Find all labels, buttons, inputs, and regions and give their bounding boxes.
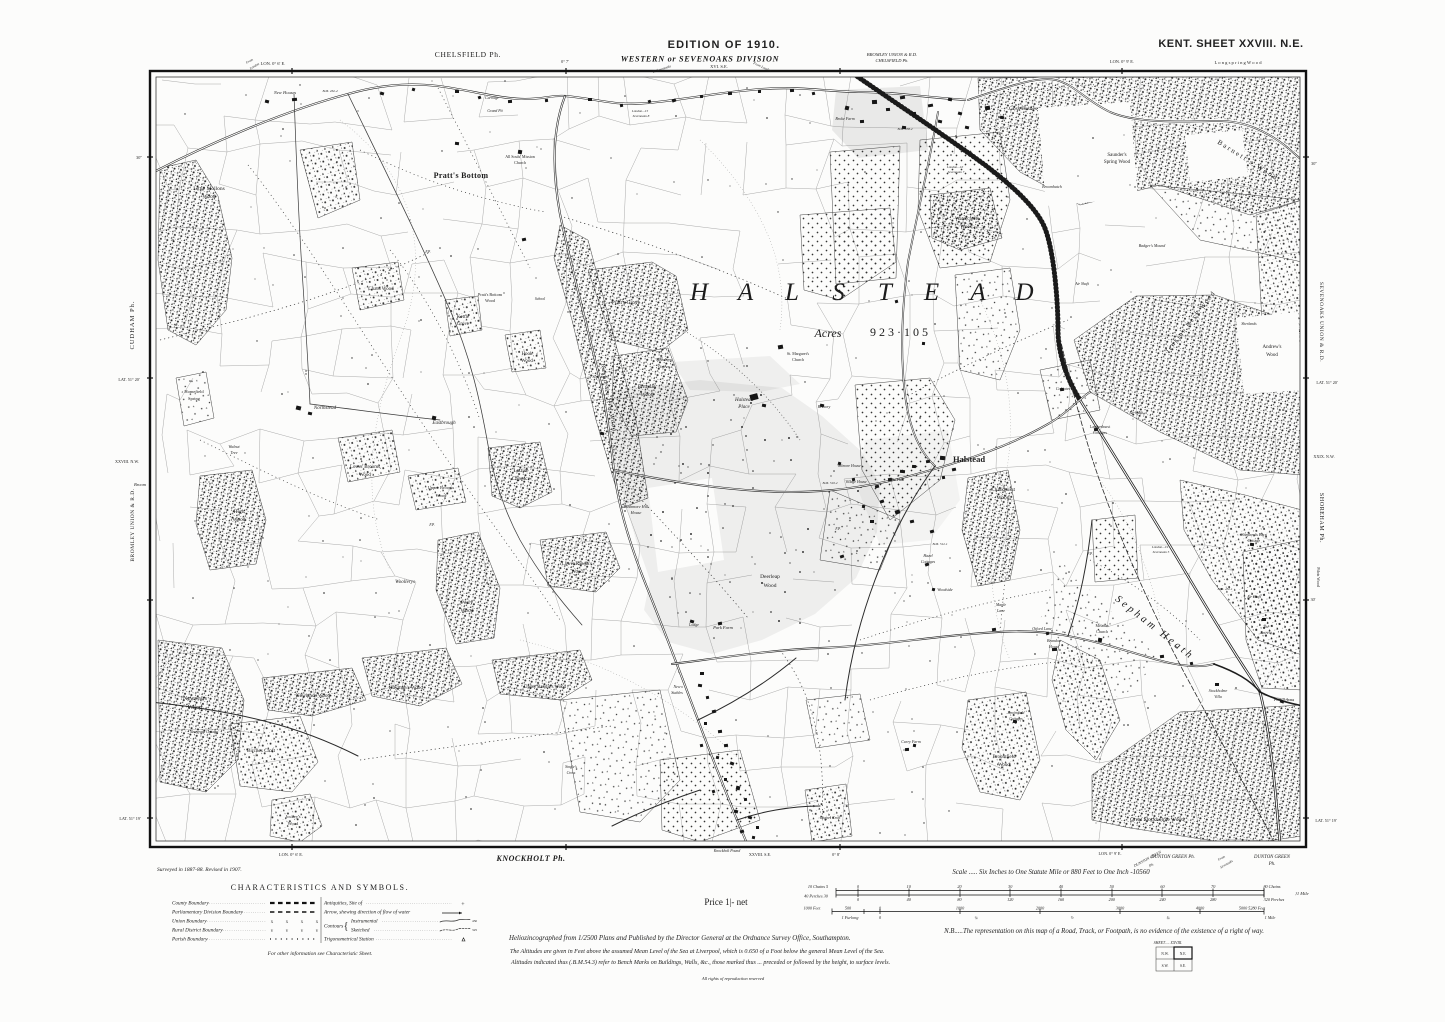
svg-text:Contours: Contours [324, 924, 343, 930]
svg-text:Curry Farm: Curry Farm [901, 739, 921, 744]
svg-text:Air Shaft: Air Shaft [1128, 411, 1144, 415]
svg-text:160: 160 [1058, 897, 1065, 902]
svg-text:Lower Brooms: Lower Brooms [350, 465, 380, 470]
svg-text:Broomfield: Broomfield [1008, 711, 1025, 715]
svg-text:Scale ..... Six Inches to One: Scale ..... Six Inches to One Statute Mi… [952, 869, 1150, 876]
svg-text:LAT. 51° 19': LAT. 51° 19' [1315, 818, 1337, 823]
svg-text:Cottages: Cottages [1009, 717, 1023, 721]
svg-text:Lattice: Lattice [513, 468, 529, 474]
svg-text:Village House: Village House [845, 480, 867, 484]
svg-text:B.M. 495.5: B.M. 495.5 [592, 375, 607, 379]
svg-text:5000 5280 Feet: 5000 5280 Feet [1239, 906, 1266, 911]
svg-text:}1 Mile: }1 Mile [1295, 891, 1309, 896]
svg-text:Retreat: Retreat [1259, 630, 1273, 635]
svg-text:The Altitudes are given in Fee: The Altitudes are given in Feet above th… [510, 948, 884, 955]
svg-text:Sevenoaks 8: Sevenoaks 8 [633, 114, 650, 118]
svg-text:Watercrofts: Watercrofts [955, 215, 979, 222]
svg-text:LAT. 51° 20': LAT. 51° 20' [118, 377, 140, 382]
svg-text:T: T [878, 279, 894, 306]
svg-text:N.E.: N.E. [1180, 952, 1187, 956]
svg-text:B.M. 358.2: B.M. 358.2 [897, 127, 912, 131]
svg-text:L: L [784, 279, 799, 306]
svg-text:House: House [1048, 644, 1059, 649]
svg-text:Wood: Wood [521, 359, 533, 364]
svg-text:XXVIII. S.E.: XXVIII. S.E. [749, 852, 771, 857]
svg-text:Acres: Acres [814, 326, 842, 340]
svg-text:Pratt's Bottom: Pratt's Bottom [478, 292, 503, 297]
svg-text:Wood: Wood [485, 298, 496, 303]
svg-text:Beechen: Beechen [656, 357, 672, 362]
svg-text:Parish Boundary: Parish Boundary [171, 937, 208, 943]
svg-text:Northstead: Northstead [313, 406, 337, 411]
svg-text:30': 30' [1311, 597, 1316, 602]
svg-text:Woollerys: Woollerys [395, 580, 415, 585]
svg-text:Grove: Grove [457, 322, 470, 327]
svg-text:L o n g s p r i n g W o o d: L o n g s p r i n g W o o d [1214, 60, 1262, 65]
svg-text:Birches Croft: Birches Croft [247, 747, 276, 754]
svg-text:40 Perches 30: 40 Perches 30 [804, 894, 829, 899]
svg-text:Price 1|- net: Price 1|- net [704, 897, 748, 907]
svg-text:Trigonometrical Station: Trigonometrical Station [324, 937, 374, 943]
svg-text:A: A [968, 279, 986, 306]
svg-text:Stables: Stables [671, 690, 683, 695]
svg-text:{: { [344, 921, 349, 932]
svg-text:DUNTON GREEN: DUNTON GREEN [1253, 855, 1291, 860]
svg-text:Eastbrough: Eastbrough [431, 421, 456, 426]
svg-text:Pratt's Bottom: Pratt's Bottom [434, 171, 489, 180]
svg-text:Hayman's Wood: Hayman's Wood [389, 685, 423, 691]
svg-text:Pratt's Grove: Pratt's Grove [612, 300, 641, 306]
svg-text:Stockholme: Stockholme [1209, 688, 1228, 693]
svg-text:Hook: Hook [521, 352, 533, 357]
svg-text:3000: 3000 [1116, 906, 1125, 911]
svg-text:Park Farm: Park Farm [712, 625, 734, 630]
svg-text:H: H [689, 279, 710, 306]
svg-text:Mission: Mission [1096, 623, 1109, 628]
svg-text:Lane: Lane [996, 608, 1005, 613]
svg-text:Place: Place [737, 405, 750, 410]
svg-text:Broke Farm: Broke Farm [835, 116, 854, 121]
svg-text:Villa: Villa [1214, 694, 1221, 699]
svg-text:High: High [234, 509, 245, 515]
svg-text:1 Furlong: 1 Furlong [842, 915, 859, 920]
svg-text:House: House [630, 510, 642, 515]
svg-text:Cottage: Cottage [1248, 538, 1261, 543]
svg-text:KENT. SHEET XXVIII. N.E.: KENT. SHEET XXVIII. N.E. [1158, 38, 1303, 50]
svg-text:B.M. 510.2: B.M. 510.2 [822, 481, 837, 485]
svg-text:A: A [736, 279, 754, 306]
svg-text:Broomhatch: Broomhatch [1042, 184, 1062, 189]
svg-text:Wood.: Wood. [960, 224, 974, 230]
svg-text:320 Perches: 320 Perches [1264, 897, 1285, 902]
svg-text:Chapel Croft: Chapel Croft [820, 815, 842, 820]
svg-text:LON. 0° 9' E.: LON. 0° 9' E. [1098, 851, 1121, 856]
svg-text:Wood: Wood [188, 705, 202, 711]
svg-text:Newyears: Newyears [183, 696, 208, 702]
svg-text:Badger's Mound: Badger's Mound [1139, 243, 1167, 248]
svg-text:Rectory: Rectory [817, 404, 831, 409]
svg-text:Sherlands: Sherlands [1241, 322, 1257, 326]
svg-text:All rights of reproduction res: All rights of reproduction reserved [701, 976, 765, 981]
svg-text:80 Chains: 80 Chains [1263, 884, 1280, 889]
svg-text:200: 200 [1109, 897, 1116, 902]
svg-text:Wood: Wood [996, 495, 1009, 501]
svg-text:Little Mollons: Little Mollons [193, 186, 225, 192]
svg-text:Goss Bushes: Goss Bushes [1009, 106, 1037, 112]
svg-text:For other information see Char: For other information see Characteristic… [267, 950, 373, 957]
svg-text:280: 280 [1210, 897, 1217, 902]
svg-text:Woodside: Woodside [937, 587, 953, 592]
svg-text:Saunder's: Saunder's [1107, 153, 1126, 158]
svg-text:Surveyed in 1887-88. Revised: Surveyed in 1887-88. Revised in 1907. [157, 867, 242, 873]
svg-text:Single's: Single's [565, 765, 577, 769]
svg-text:Kettle: Kettle [457, 315, 470, 320]
svg-text:LAT. 51° 19': LAT. 51° 19' [119, 816, 141, 821]
svg-text:LON. 0° 6' E.: LON. 0° 6' E. [261, 61, 286, 66]
svg-text:Heliozincographed from 1/2500: Heliozincographed from 1/2500 Plans and … [508, 935, 851, 942]
svg-text:Wilmore House: Wilmore House [837, 464, 861, 468]
svg-text:Lamberhurst: Lamberhurst [1090, 424, 1111, 429]
svg-text:Air Shaft: Air Shaft [1246, 595, 1262, 599]
svg-text:4000: 4000 [1196, 906, 1205, 911]
svg-text:Great Stockholme Wood: Great Stockholme Wood [1130, 817, 1184, 823]
svg-text:Sevenoaks 7: Sevenoaks 7 [948, 170, 965, 174]
svg-text:240: 240 [1159, 897, 1166, 902]
svg-text:CHARACTERISTICS AND SYMBOLS.: CHARACTERISTICS AND SYMBOLS. [231, 883, 409, 892]
svg-text:New Houses: New Houses [273, 90, 297, 95]
svg-text:Walnut: Walnut [228, 444, 240, 449]
svg-text:Wood: Wood [359, 473, 371, 478]
svg-text:Union Boundary: Union Boundary [172, 919, 207, 925]
svg-text:Wood: Wood [763, 583, 776, 589]
svg-text:LAT. 51° 20': LAT. 51° 20' [1316, 380, 1338, 385]
svg-text:Coppice: Coppice [512, 476, 531, 482]
svg-text:Wood: Wood [202, 194, 215, 200]
svg-text:Halstead: Halstead [734, 398, 754, 403]
svg-text:Chard Wood: Chard Wood [368, 287, 394, 292]
svg-text:30'': 30'' [136, 155, 142, 160]
svg-text:New: New [672, 684, 680, 689]
svg-text:Parliamentary Division Boundar: Parliamentary Division Boundary [171, 910, 244, 916]
svg-text:School: School [535, 297, 545, 301]
svg-text:Sketched: Sketched [351, 928, 370, 934]
svg-text:Upper Randle's Wood: Upper Randle's Wood [524, 685, 567, 690]
svg-text:S.E.: S.E. [1180, 964, 1186, 968]
svg-text:The: The [1263, 624, 1269, 629]
svg-text:Church: Church [1096, 629, 1108, 634]
svg-text:Sevenoaks 5: Sevenoaks 5 [1153, 550, 1170, 554]
svg-text:Church: Church [792, 357, 804, 362]
svg-text:Broom: Broom [134, 482, 147, 487]
svg-text:KNOCKHOLT Ph.: KNOCKHOLT Ph. [495, 854, 565, 863]
svg-text:Ph.: Ph. [1268, 862, 1276, 867]
svg-text:BROMLEY UNION & R.D.: BROMLEY UNION & R.D. [130, 488, 136, 561]
svg-text:0° 8': 0° 8' [832, 852, 840, 857]
svg-text:Carriage: Carriage [485, 96, 499, 100]
svg-text:CHELSFIELD Ph.: CHELSFIELD Ph. [435, 50, 501, 59]
svg-text:Chalkhurst: Chalkhurst [991, 487, 1016, 493]
svg-text:All Souls' Mission: All Souls' Mission [505, 154, 535, 159]
svg-text:XXIX. N.W.: XXIX. N.W. [1313, 454, 1334, 459]
svg-text:London...16: London...16 [946, 165, 964, 169]
svg-text:0° 7': 0° 7' [561, 59, 569, 64]
svg-text:CHELSFIELD Ph.: CHELSFIELD Ph. [876, 58, 909, 63]
svg-text:Wood: Wood [998, 763, 1010, 768]
svg-text:Knockholt Pound: Knockholt Pound [713, 849, 741, 853]
svg-text:XVI. S.E.: XVI. S.E. [710, 64, 728, 69]
svg-text:N.B.....The representation on: N.B.....The representation on this map o… [943, 928, 1264, 935]
svg-text:B.M. 512.1: B.M. 512.1 [932, 542, 947, 546]
svg-text:Altitudes indicated thus (.B.M: Altitudes indicated thus (.B.M.54.3) ref… [510, 959, 890, 966]
svg-text:SHEET..... XXVIII.: SHEET..... XXVIII. [1154, 941, 1183, 945]
svg-text:Church: Church [514, 160, 526, 165]
svg-text:Spring: Spring [188, 396, 201, 401]
svg-text:Perry: Perry [461, 600, 473, 606]
svg-text:Homefield: Homefield [184, 389, 204, 394]
svg-text:9 2 3 · 1 0 5: 9 2 3 · 1 0 5 [870, 325, 928, 339]
svg-text:S: S [832, 279, 845, 306]
svg-text:Newlands Wood: Newlands Wood [296, 693, 331, 699]
svg-text:Instrumental: Instrumental [350, 919, 378, 925]
svg-text:London...19: London...19 [1151, 545, 1169, 549]
svg-text:Rural District Boundary: Rural District Boundary [171, 928, 223, 934]
svg-text:120: 120 [1007, 897, 1014, 902]
svg-text:30'': 30'' [1311, 161, 1317, 166]
svg-text:Colgates: Colgates [1056, 386, 1071, 391]
svg-text:Wood: Wood [436, 493, 447, 498]
svg-text:S.W.: S.W. [1162, 964, 1169, 968]
svg-text:EDITION OF 1910.: EDITION OF 1910. [668, 39, 781, 51]
svg-text:Andrew's: Andrew's [1263, 345, 1282, 350]
svg-text:500: 500 [845, 906, 852, 911]
svg-text:County Boundary: County Boundary [172, 901, 209, 907]
svg-text:Upper Brooms: Upper Brooms [428, 485, 455, 490]
svg-text:Lodge: Lodge [688, 622, 699, 627]
svg-text:F.P.: F.P. [1086, 552, 1093, 556]
svg-text:London...15: London...15 [631, 109, 649, 113]
svg-text:Air Shaft: Air Shaft [1074, 282, 1090, 286]
svg-text:Antiquities, Site of: Antiquities, Site of [323, 900, 364, 907]
svg-text:Birthday: Birthday [637, 384, 656, 390]
svg-text:325: 325 [472, 928, 477, 932]
svg-text:DUNTON GREEN Ph.: DUNTON GREEN Ph. [1150, 855, 1195, 860]
svg-text:Wood: Wood [288, 821, 299, 826]
svg-text:SEVENOAKS UNION & R.D.: SEVENOAKS UNION & R.D. [1318, 282, 1324, 362]
svg-text:E: E [923, 279, 939, 306]
svg-text:Shepherds Barn: Shepherds Barn [1241, 532, 1266, 537]
svg-text:LON. 0° 6' E.: LON. 0° 6' E. [279, 852, 303, 857]
svg-text:1000 Feet: 1000 Feet [804, 906, 822, 911]
svg-text:F.P.: F.P. [428, 523, 435, 527]
svg-text:SHOREHAM Ph.: SHOREHAM Ph. [1318, 493, 1324, 543]
svg-text:Brandon: Brandon [1047, 638, 1061, 643]
svg-text:Cottages: Cottages [921, 559, 936, 564]
svg-text:F.P.: F.P. [834, 527, 841, 531]
svg-text:Polhill Arms: Polhill Arms [1273, 697, 1295, 702]
svg-text:Grand Pit: Grand Pit [487, 109, 503, 113]
svg-text:Deerleap: Deerleap [760, 574, 780, 580]
svg-text:Otford Lane: Otford Lane [1032, 626, 1052, 631]
svg-text:Halstead: Halstead [953, 454, 985, 464]
svg-text:Wood: Wood [232, 517, 245, 523]
svg-text:Maple: Maple [995, 602, 1006, 607]
svg-text:Rushmore Hill: Rushmore Hill [623, 504, 649, 509]
svg-text:Arrow, shewing direction of fl: Arrow, shewing direction of flow of wate… [323, 909, 411, 916]
svg-text:F.P.: F.P. [424, 250, 431, 254]
svg-text:Pilots Wood: Pilots Wood [1316, 567, 1321, 587]
svg-text:Wood: Wood [640, 392, 653, 398]
svg-text:F.P.: F.P. [609, 445, 616, 449]
svg-text:2000: 2000 [1036, 906, 1045, 911]
svg-text:Tree: Tree [231, 450, 238, 455]
svg-text:BROMLEY UNION & R.D.: BROMLEY UNION & R.D. [867, 52, 917, 57]
svg-text:Spring Wood: Spring Wood [1104, 160, 1131, 165]
svg-text:1000: 1000 [956, 906, 965, 911]
svg-text:B.M. 432.1: B.M. 432.1 [1217, 587, 1232, 591]
svg-text:Newyears Cottage: Newyears Cottage [189, 730, 218, 734]
svg-text:D: D [1014, 279, 1033, 306]
svg-text:¾: ¾ [1167, 915, 1170, 920]
svg-text:XXVIII. N.W.: XXVIII. N.W. [115, 459, 139, 464]
svg-text:LON. 0° 9' E.: LON. 0° 9' E. [1110, 59, 1134, 64]
svg-text:St. Margaret's: St. Margaret's [787, 351, 810, 356]
svg-text:Wood: Wood [460, 608, 473, 614]
svg-text:Hazel: Hazel [922, 553, 933, 558]
svg-text:CUDHAM Ph.: CUDHAM Ph. [129, 300, 136, 349]
svg-text:Cottages: Cottages [1093, 430, 1107, 435]
svg-text:10 Chains 5: 10 Chains 5 [808, 884, 828, 889]
svg-text:N.W.: N.W. [1161, 952, 1169, 956]
svg-text:Cross: Cross [567, 771, 576, 775]
svg-text:½: ½ [1071, 915, 1074, 920]
svg-text:The Hall: The Hall [890, 477, 905, 482]
svg-text:B.M. 262.4: B.M. 262.4 [322, 89, 337, 93]
svg-text:Wood: Wood [1266, 353, 1278, 358]
svg-text:1 Mile: 1 Mile [1265, 915, 1276, 920]
svg-text:Grove: Grove [658, 364, 669, 369]
svg-text:Lower Randle's: Lower Randle's [562, 562, 592, 567]
svg-text:Wood: Wood [571, 570, 583, 575]
svg-text:Jockey's: Jockey's [285, 814, 300, 819]
svg-text:¼: ¼ [975, 915, 978, 920]
svg-text:Broomfield: Broomfield [992, 755, 1016, 760]
svg-text:450: 450 [472, 919, 477, 923]
